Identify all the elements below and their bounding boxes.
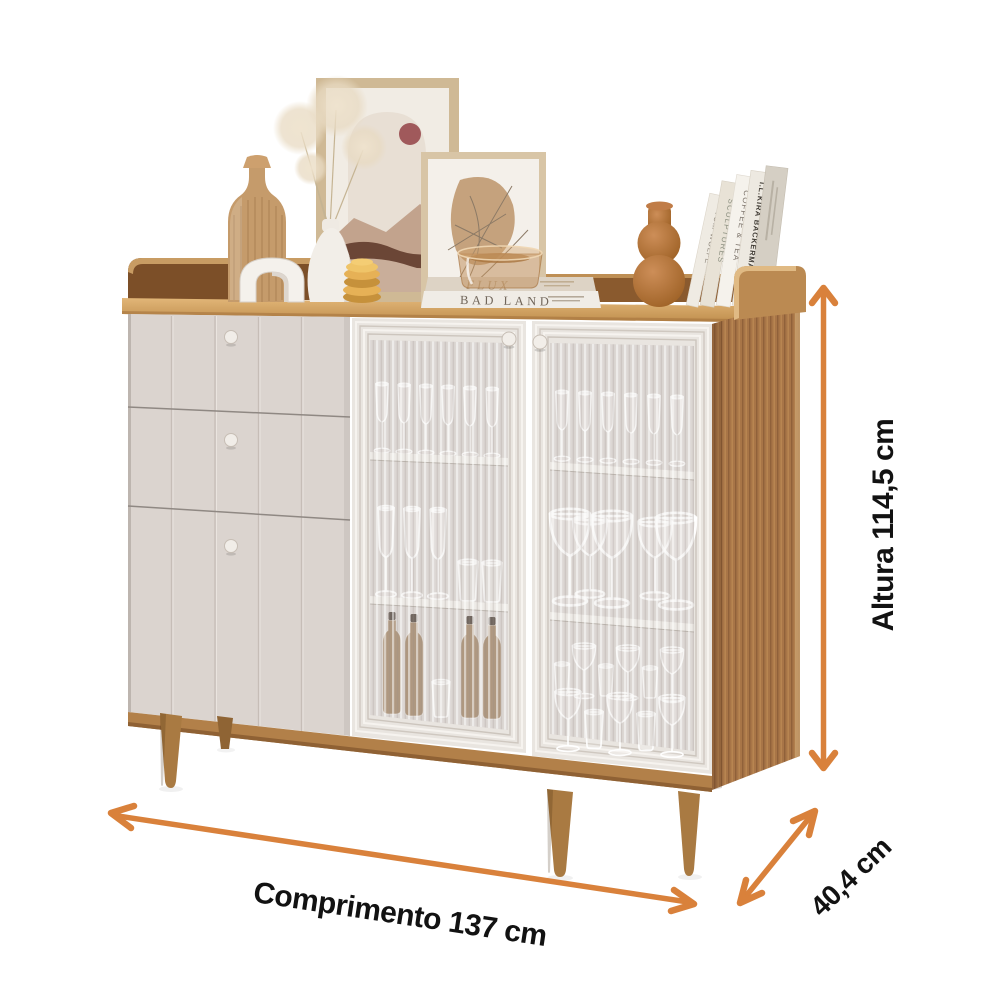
- cabinet-right-rail: [734, 266, 806, 320]
- glass-door-left: [352, 318, 526, 753]
- height-dimension-arrow: [812, 288, 835, 768]
- knob: [225, 331, 238, 344]
- knob: [225, 540, 238, 553]
- height-dimension-label: Altura 114,5 cm: [867, 375, 901, 675]
- leg: [217, 716, 233, 749]
- left-panel-section: [128, 314, 350, 736]
- furniture-illustration: FLUX BAD LAND TOM WOLFE SCULPTURES COFFE…: [0, 0, 1000, 1000]
- length-dimension-arrow: [111, 806, 694, 911]
- gold-stacked-decor: [343, 258, 381, 303]
- depth-dimension-arrow: [740, 811, 815, 903]
- knob: [225, 434, 238, 447]
- terracotta-vase: [633, 202, 685, 308]
- door-knob: [533, 335, 547, 349]
- fluted-glass-overlay: [370, 340, 508, 730]
- door-knob: [502, 332, 516, 346]
- leg: [678, 791, 700, 876]
- product-dimension-image: FLUX BAD LAND TOM WOLFE SCULPTURES COFFE…: [0, 0, 1000, 1000]
- fluted-glass-overlay: [550, 343, 694, 751]
- glass-door-right: [532, 321, 712, 774]
- cabinet-side-panel: [712, 298, 800, 790]
- book-title: BAD LAND: [460, 293, 552, 309]
- amber-glass-bowl: [458, 246, 542, 288]
